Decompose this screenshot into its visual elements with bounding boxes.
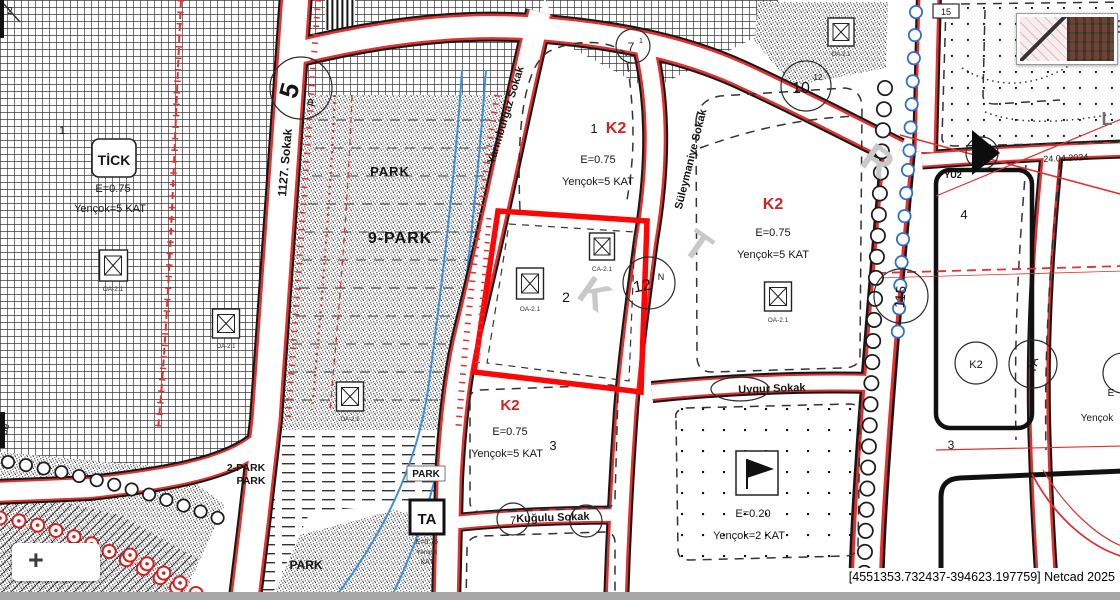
parcel-number: 2 xyxy=(562,289,570,305)
parcel-number: 3 xyxy=(549,438,556,453)
inset-cadastre-half xyxy=(1020,17,1067,61)
park-label: PARK xyxy=(289,558,322,572)
park-label: PARK xyxy=(412,469,440,480)
statusbar-coordinates: [4551353.732437-394623.197759] Netcad 20… xyxy=(844,568,1120,592)
trafo-label: OA-2.1 xyxy=(216,344,236,350)
street-name: Süleymaniye Sokak xyxy=(673,107,710,210)
zone-code: YU2 xyxy=(944,170,962,180)
zone-far: E=0.75 xyxy=(95,183,130,195)
bubble-number: 7A xyxy=(1025,356,1042,373)
netcad-map-viewport[interactable]: K T R TE L 1 TİCK E=0.75 Yençok=5 KAT OA… xyxy=(0,0,1120,600)
overview-inset-map[interactable] xyxy=(1016,13,1118,65)
zone-far: E=0.75 xyxy=(492,426,527,438)
bubble-number: 7 xyxy=(628,40,635,54)
zone-height: Yençok=5 KAT xyxy=(562,176,634,188)
zone-far: E=0.75 xyxy=(416,539,438,546)
zone-height: Yençok=2 KAT xyxy=(713,530,785,542)
park-label: PARK xyxy=(237,475,266,487)
bubble-number: 15 xyxy=(941,7,951,17)
zone-height: Yençok=5 KAT xyxy=(737,249,809,261)
park-label: 2-PARK xyxy=(227,462,266,474)
trafo-icon xyxy=(517,268,544,299)
trafo-label: OA-2.1 xyxy=(520,306,541,313)
trafo-icon xyxy=(765,282,792,311)
zone-height: KAT xyxy=(420,559,434,566)
bubble-number: 10 xyxy=(792,80,810,97)
bubble-number-sup: 1 xyxy=(639,38,643,45)
park-label: 9-PARK xyxy=(368,230,432,247)
flag-icon xyxy=(736,451,778,495)
bubble-number: K2 xyxy=(969,359,982,371)
zone-code: K2 xyxy=(763,196,784,213)
zone-code: K2 xyxy=(500,397,519,414)
zone-far: E=0.75 xyxy=(580,154,615,166)
zone-height: Yençok=5 KAT xyxy=(471,448,543,460)
bubble-number: 12 xyxy=(632,277,653,297)
street-name: Uygur Sokak xyxy=(738,382,807,396)
parcel-number: 4 xyxy=(960,207,967,222)
zoom-in-button[interactable]: + xyxy=(12,543,100,581)
plus-icon: + xyxy=(28,545,44,576)
bottom-frame-strip xyxy=(0,592,1120,600)
map-canvas[interactable]: K T R TE L 1 TİCK E=0.75 Yençok=5 KAT OA… xyxy=(0,0,1120,600)
bubble-number: 7 xyxy=(510,515,516,527)
zone-far: E=0.75 xyxy=(755,227,790,239)
trafo-label: OA-2.1 xyxy=(103,286,124,293)
zone-far: E xyxy=(1108,388,1115,399)
bubble-number-sup: N xyxy=(658,272,665,282)
zone-far: E=0.20 xyxy=(735,508,770,520)
park-label: PARK xyxy=(370,164,410,179)
trafo-icon xyxy=(213,309,240,338)
trafo-label: CA-2.1 xyxy=(592,266,613,273)
zone-code: K2 xyxy=(606,120,627,137)
trafo-icon xyxy=(828,18,854,46)
inset-aerial-half xyxy=(1067,17,1114,61)
bubble-number-sup: 12 xyxy=(814,73,823,82)
parcel-number: 1 xyxy=(590,121,597,136)
trafo-label: OA-2.1 xyxy=(340,417,360,423)
watermark-letter: L xyxy=(1102,109,1113,129)
zone-height: Yençok=5 KAT xyxy=(74,203,146,215)
trafo-label: OA-2.1 xyxy=(831,52,851,58)
parcel-number: 1 xyxy=(59,125,65,137)
zone-height: Yençok xyxy=(416,549,438,556)
watermark-letter: K xyxy=(570,268,619,321)
parcel-number: 3 xyxy=(948,438,955,452)
red-overlay-lines xyxy=(877,118,1120,557)
watermark-letter: T xyxy=(675,221,720,271)
survey-date: 24.04.2024 xyxy=(1043,152,1089,164)
trafo-label: OA-2.1 xyxy=(768,317,789,324)
trafo-icon xyxy=(590,233,615,260)
zone-height: Yençok xyxy=(1081,413,1114,424)
zone-code: TİCK xyxy=(98,152,131,168)
zone-code: TA xyxy=(418,511,437,528)
trafo-icon xyxy=(337,382,364,411)
trafo-icon xyxy=(100,250,128,281)
bubble-number: 115 xyxy=(891,285,909,309)
